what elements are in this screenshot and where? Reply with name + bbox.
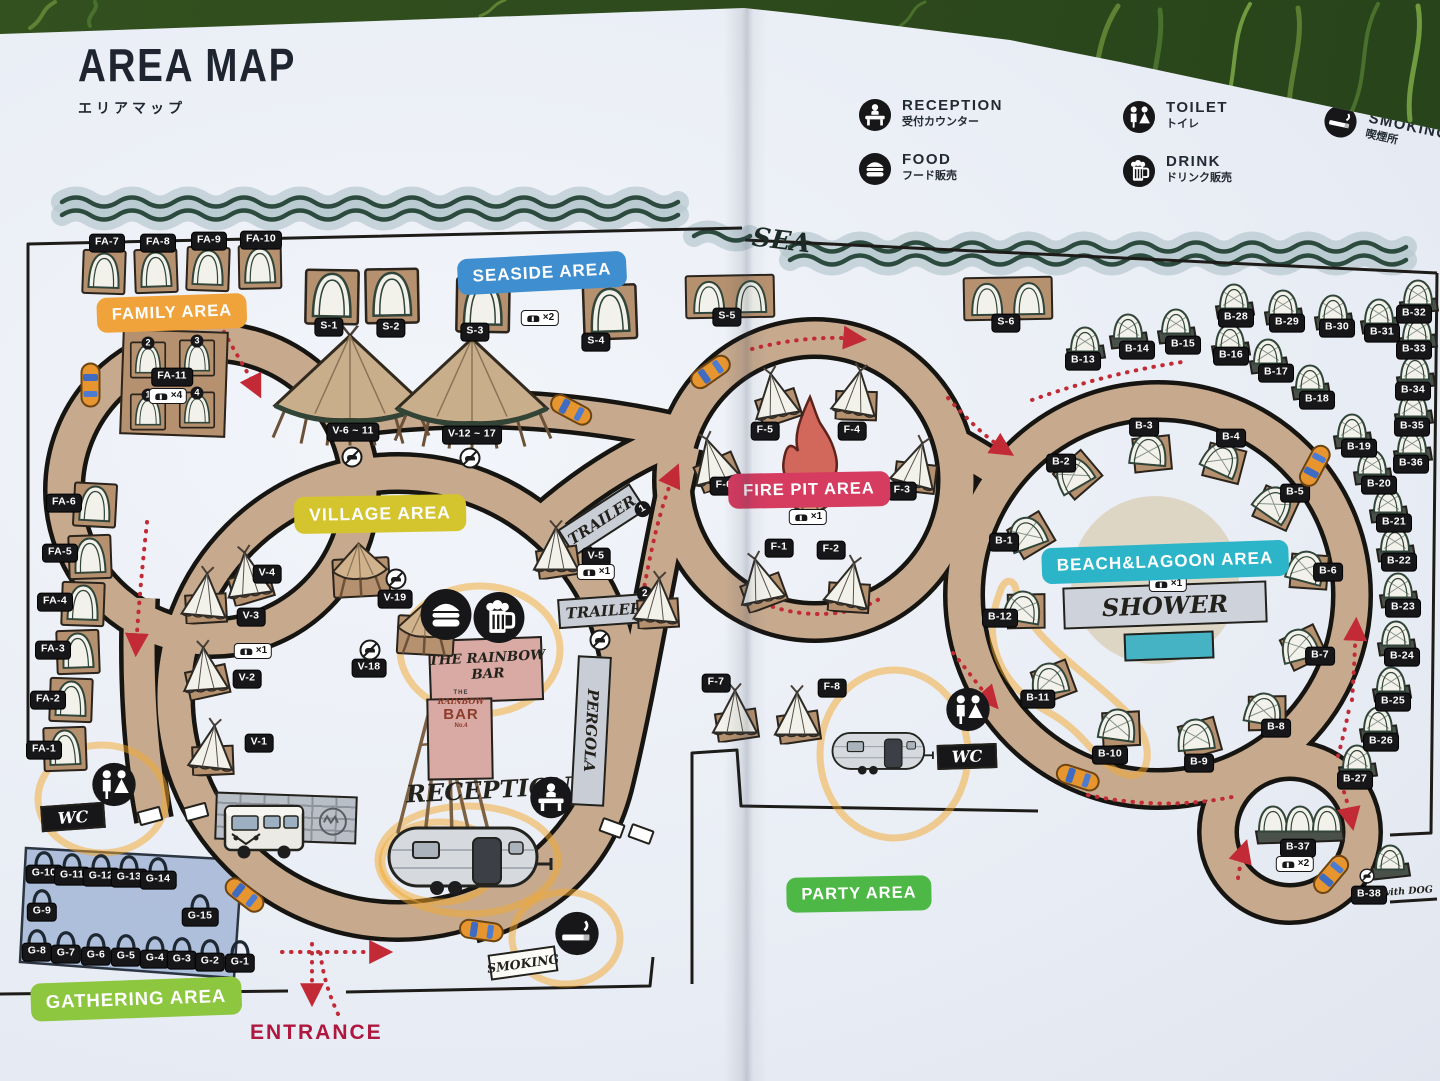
- legend-item-food: FOOD フード販売: [858, 152, 957, 191]
- site-label-g-15: G-15: [182, 908, 219, 927]
- entrance-label: ENTRANCE: [250, 1021, 383, 1045]
- site-label-b-20: B-20: [1361, 476, 1397, 495]
- no-car-icon: [1359, 868, 1375, 884]
- site-label-b-27: B-27: [1337, 771, 1373, 790]
- site-label-f-4: F-4: [838, 422, 867, 441]
- site-label-f-8: F-8: [818, 679, 847, 698]
- site-label-g-7: G-7: [51, 945, 81, 964]
- site-v-3: [175, 563, 234, 632]
- reception-desk-icon: [858, 98, 892, 137]
- site-label-f-5: F-5: [751, 422, 780, 441]
- legend-item-toilet: TOILET トイレ: [1122, 100, 1228, 139]
- site-label-v-4: V-4: [253, 565, 282, 584]
- site-label-b-8: B-8: [1261, 719, 1291, 738]
- area-badge-party-area: PARTY AREA: [786, 875, 932, 913]
- site-label-b-15: B-15: [1165, 336, 1201, 355]
- site-label-b-10: B-10: [1092, 746, 1128, 765]
- site-v-5: [529, 520, 583, 585]
- site-label-b-22: B-22: [1381, 553, 1417, 572]
- legend-item-drink: DRINK ドリンク販売: [1122, 154, 1232, 193]
- site-label-b-2: B-2: [1046, 454, 1076, 473]
- site-label-f-3: F-3: [888, 482, 917, 501]
- toilet-icon: [1122, 100, 1156, 139]
- area-map: THE RAINBOW BAR THE RAINBOW BAR No.4 TRA…: [0, 0, 1440, 1081]
- site-label-b-37: B-37: [1280, 839, 1316, 858]
- site-label-f-2: F-2: [817, 541, 846, 560]
- site-label-g-3: G-3: [167, 951, 197, 970]
- page-title-block: AREA MAP エリアマップ: [78, 38, 338, 118]
- car-capacity-badge: ×1: [577, 564, 615, 580]
- site-label-b-14: B-14: [1119, 341, 1155, 360]
- site-tent: [627, 568, 686, 637]
- site-v-1: [182, 715, 242, 785]
- car-capacity-badge: ×2: [521, 310, 559, 326]
- site-label-g-1: G-1: [225, 954, 255, 973]
- no-car-icon: [459, 447, 481, 469]
- site-label-v-2: V-2: [233, 670, 262, 689]
- no-car-icon: [589, 629, 611, 651]
- site-label-b-25: B-25: [1375, 693, 1411, 712]
- site-label-s-2: S-2: [376, 319, 405, 338]
- site-label-s-3: S-3: [460, 323, 489, 342]
- site-label-b-1: B-1: [989, 533, 1019, 552]
- site-label-b-26: B-26: [1363, 733, 1399, 752]
- area-badge-village-area: VILLAGE AREA: [294, 494, 466, 534]
- site-label-b-4: B-4: [1216, 429, 1246, 448]
- car-capacity-badge: ×1: [789, 509, 827, 525]
- site-label-b-34: B-34: [1395, 382, 1431, 401]
- car: [75, 362, 102, 408]
- area-badge-gathering-area: GATHERING AREA: [30, 976, 242, 1021]
- toilet-icon: [91, 762, 137, 813]
- site-label-v-1: V-1: [245, 734, 274, 753]
- site-label-g-2: G-2: [195, 953, 225, 972]
- site-label-b-13: B-13: [1065, 352, 1101, 371]
- site-label-fa-9: FA-9: [191, 232, 227, 251]
- site-v-2: [176, 638, 234, 707]
- rainbow-bar-logo: THE RAINBOW BAR No.4: [432, 690, 490, 730]
- site-label-b-33: B-33: [1396, 341, 1432, 360]
- site-label-g-8: G-8: [22, 943, 52, 962]
- site-label-b-35: B-35: [1394, 418, 1430, 437]
- site-label-b-30: B-30: [1319, 319, 1355, 338]
- site-label-s-4: S-4: [581, 333, 610, 352]
- site-label-b-18: B-18: [1299, 391, 1335, 410]
- site-label-g-6: G-6: [81, 947, 111, 966]
- site-label-b-16: B-16: [1213, 347, 1249, 366]
- site-label-b-9: B-9: [1184, 754, 1214, 773]
- site-label-s-5: S-5: [712, 308, 741, 327]
- reception-airstream-trailer: [385, 820, 557, 905]
- car-capacity-badge: ×1: [234, 643, 272, 659]
- site-label-b-36: B-36: [1393, 455, 1429, 474]
- drink-icon: [472, 591, 526, 650]
- no-car-icon: [359, 639, 381, 661]
- site-label-b-29: B-29: [1269, 314, 1305, 333]
- site-label-fa-8: FA-8: [140, 234, 176, 253]
- no-car-icon: [385, 568, 407, 590]
- wall-logo: [318, 807, 347, 836]
- site-label-fa-5: FA-5: [42, 544, 78, 563]
- site-label-v-6-11: V-6 ~ 11: [326, 423, 379, 442]
- legend-item-reception: RECEPTION 受付カウンター: [858, 98, 1003, 137]
- site-label-fa-7: FA-7: [89, 234, 125, 253]
- food-icon: [419, 588, 473, 647]
- site-label-b-6: B-6: [1313, 563, 1343, 582]
- site-label-b-17: B-17: [1258, 364, 1294, 383]
- car-capacity-badge: ×2: [1276, 856, 1314, 872]
- smoking-icon: [554, 911, 600, 962]
- tent-number: 2: [142, 337, 155, 350]
- tent-number: 4: [191, 387, 204, 400]
- site-b-8: [1229, 679, 1297, 749]
- area-badge-family-area: FAMILY AREA: [96, 293, 248, 333]
- booklet-page: THE RAINBOW BAR THE RAINBOW BAR No.4 TRA…: [0, 0, 1440, 1081]
- reception-desk-icon: [529, 776, 573, 825]
- site-b-11: [1016, 649, 1084, 719]
- vw-van: [222, 800, 310, 865]
- toilet-icon: [945, 687, 991, 738]
- food-icon: [858, 152, 892, 191]
- site-label-b-12: B-12: [982, 609, 1018, 628]
- wc-sign-east: WC: [937, 743, 998, 770]
- site-label-v-18: V-18: [352, 659, 387, 678]
- site-label-b-11: B-11: [1020, 690, 1055, 709]
- photo-of-area-map-booklet: { "photo": {"title":"AREA MAP","subtitle…: [0, 0, 1440, 1081]
- site-label-fa-3: FA-3: [35, 641, 71, 660]
- page-title: AREA MAP: [78, 38, 296, 92]
- area-badge-fire-pit-area: FIRE PIT AREA: [728, 471, 890, 509]
- site-label-b-3: B-3: [1129, 418, 1159, 437]
- no-car-icon: [341, 446, 363, 468]
- site-label-b-31: B-31: [1364, 324, 1400, 343]
- site-label-fa-1: FA-1: [26, 741, 62, 760]
- site-f-8: [770, 685, 824, 750]
- drink-icon: [1122, 154, 1156, 193]
- site-label-g-5: G-5: [111, 948, 141, 967]
- site-label-s-1: S-1: [314, 318, 343, 337]
- site-label-g-9: G-9: [27, 903, 57, 922]
- site-label-b-21: B-21: [1376, 514, 1412, 533]
- site-label-f-1: F-1: [765, 539, 794, 558]
- site-label-g-14: G-14: [140, 871, 177, 890]
- site-label-b-28: B-28: [1218, 309, 1254, 328]
- car-capacity-badge: ×4: [149, 388, 187, 404]
- site-label-b-7: B-7: [1305, 647, 1335, 666]
- site-label-fa-6: FA-6: [46, 494, 82, 513]
- lagoon-pool: [1124, 630, 1215, 661]
- site-label-fa-2: FA-2: [30, 691, 66, 710]
- site-f-4: [824, 358, 888, 431]
- site-label-fa-4: FA-4: [37, 593, 73, 612]
- site-label-s-6: S-6: [991, 314, 1020, 333]
- site-label-fa-11: FA-11: [151, 368, 193, 387]
- tent-number: 3: [191, 335, 204, 348]
- site-label-fa-10: FA-10: [240, 231, 282, 250]
- site-label-b-23: B-23: [1385, 599, 1421, 618]
- site-label-v-19: V-19: [378, 590, 413, 609]
- site-label-f-7: F-7: [702, 674, 731, 693]
- site-label-b-24: B-24: [1384, 648, 1420, 667]
- site-label-g-4: G-4: [140, 950, 170, 969]
- site-label-b-19: B-19: [1341, 439, 1377, 458]
- site-label-v-12-17: V-12 ~ 17: [442, 426, 502, 445]
- wc-airstream-trailer: [830, 728, 937, 781]
- page-subtitle: エリアマップ: [78, 98, 338, 118]
- site-label-v-3: V-3: [237, 608, 266, 627]
- site-label-b-32: B-32: [1396, 305, 1432, 324]
